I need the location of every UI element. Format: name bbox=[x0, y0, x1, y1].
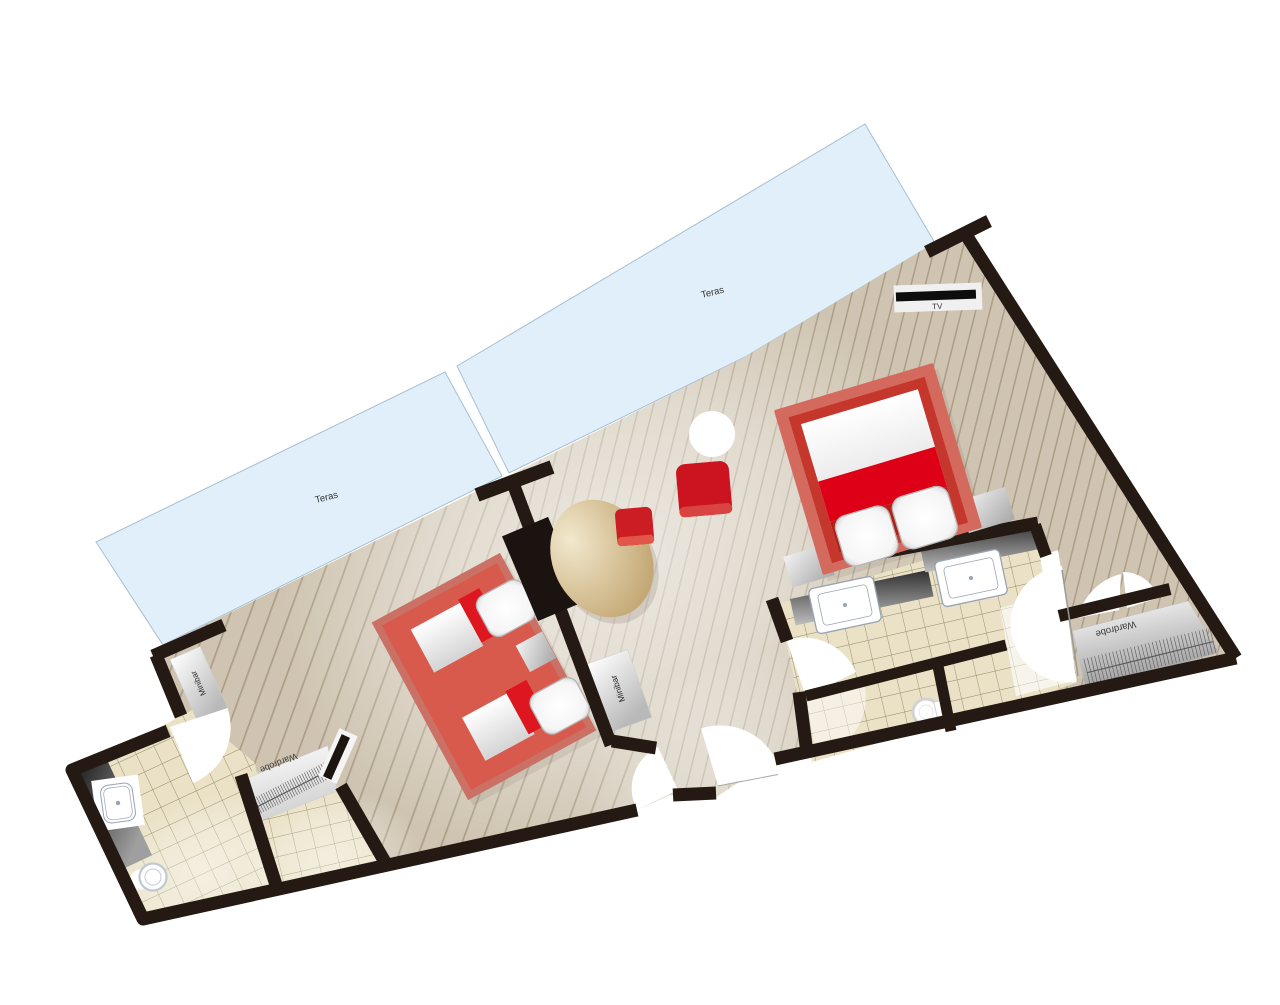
svg-text:TV: TV bbox=[932, 302, 943, 311]
